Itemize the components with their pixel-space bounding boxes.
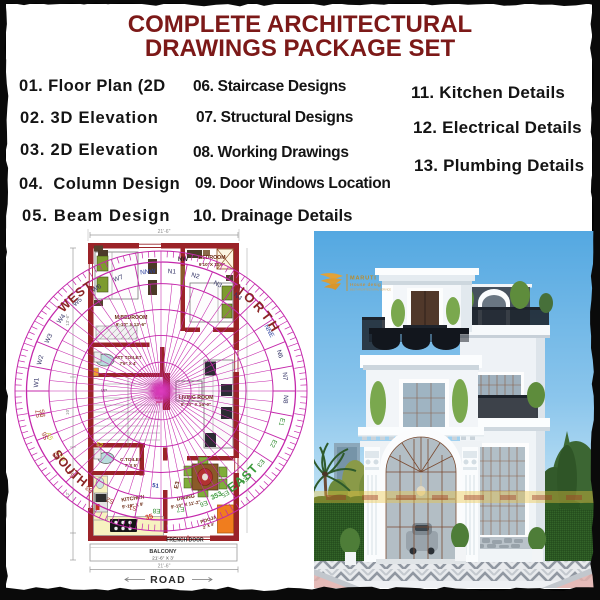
svg-text:N8: N8	[281, 395, 289, 404]
svg-text:21'-6" X 3': 21'-6" X 3'	[152, 556, 174, 562]
svg-text:13'-6": 13'-6"	[65, 314, 70, 326]
svg-text:N7: N7	[281, 372, 289, 381]
svg-text:BALCONY: BALCONY	[149, 549, 177, 555]
svg-text:21'-6": 21'-6"	[158, 229, 171, 235]
svg-text:BEST ARCHITECTURAL SERVICE: BEST ARCHITECTURAL SERVICE	[350, 288, 391, 292]
svg-text:N1: N1	[167, 268, 176, 276]
svg-text:9'-10" X 13'-6": 9'-10" X 13'-6"	[116, 322, 147, 327]
svg-text:UP: UP	[101, 388, 107, 393]
svg-text:FRENCH DOOR: FRENCH DOOR	[166, 538, 204, 544]
svg-text:E7: E7	[176, 505, 185, 513]
svg-text:MARUTI: MARUTI	[350, 276, 377, 282]
svg-text:10': 10'	[65, 409, 70, 415]
svg-text:House desig: House desig	[350, 282, 381, 288]
svg-text:ROAD: ROAD	[150, 574, 186, 586]
svg-text:W1: W1	[33, 377, 41, 388]
svg-text:21'-6": 21'-6"	[158, 564, 171, 570]
svg-text:E8: E8	[152, 507, 161, 514]
